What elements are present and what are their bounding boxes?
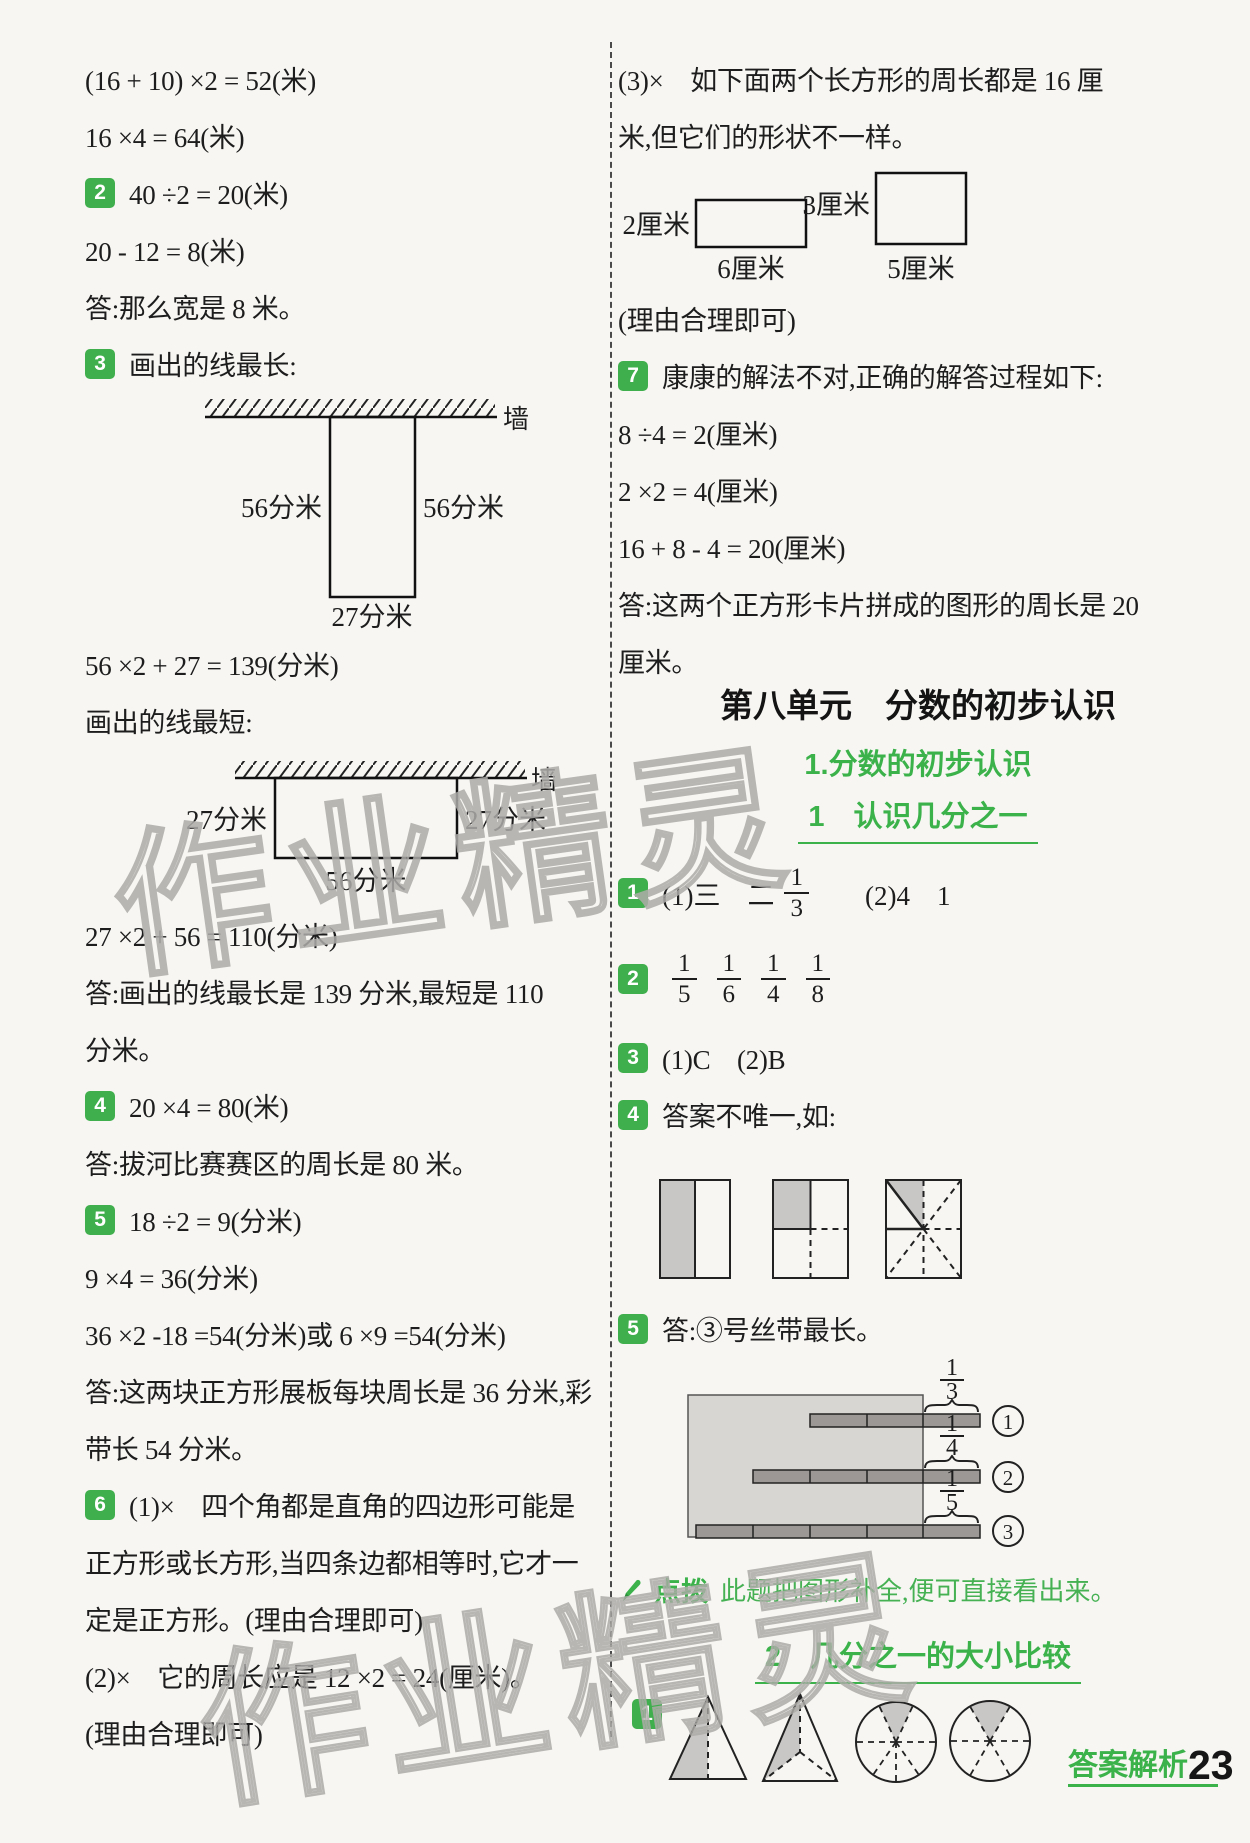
wall-label: 墙 <box>503 405 529 434</box>
fraction: 13 <box>784 864 809 922</box>
pencil-icon <box>618 1577 642 1603</box>
question-number-badge: 3 <box>85 349 115 379</box>
footer-label: 答案解析 <box>1068 1749 1188 1782</box>
lesson1-title: 1 认识几分之一 <box>618 790 1218 847</box>
dimension-label: 3厘米 <box>803 190 871 220</box>
answer-line: 8 ÷4 = 2(厘米) <box>618 404 1218 461</box>
answer-text: 定是正方形。(理由合理即可) <box>85 1599 423 1638</box>
fraction: 15 <box>672 950 697 1008</box>
answer-line: 画出的线最短: <box>85 692 537 749</box>
answer-line: 5答:③号丝带最长。 <box>618 1300 1218 1357</box>
answer-text: 答:这两个正方形卡片拼成的图形的周长是 20 <box>618 584 1139 623</box>
answer-line: 答:拔河比赛赛区的周长是 80 米。 <box>85 1134 537 1191</box>
answer-line: 240 ÷2 = 20(米) <box>85 164 537 221</box>
answer-line: 420 ×4 = 80(米) <box>85 1077 537 1134</box>
answer-line: (理由合理即可) <box>618 290 1218 347</box>
wall-diagram-shortest: 27分米 27分米 56分米 墙 <box>85 749 537 906</box>
right-column: (3)× 如下面两个长方形的周长都是 16 厘 米,但它们的形状不一样。 2厘米… <box>618 50 1218 1792</box>
shaded-squares-svg <box>618 1172 1218 1284</box>
answer-text: (理由合理即可) <box>85 1713 263 1752</box>
answer-text: 答:这两块正方形展板每块周长是 36 分米,彩 <box>85 1371 592 1410</box>
answer-line: 2 ×2 = 4(厘米) <box>618 461 1218 518</box>
fraction: 14 <box>761 950 786 1008</box>
ribbon-svg: 1 3 1 1 4 2 <box>618 1357 1218 1549</box>
wall-hatching <box>235 761 525 777</box>
shaded-squares-diagram <box>618 1172 1218 1284</box>
tip-text: 此题把图形补全,便可直接看出来。 <box>720 1571 1117 1608</box>
dimension-label: 2厘米 <box>623 210 691 240</box>
answer-text: 答:③号丝带最长。 <box>662 1309 883 1348</box>
answer-text: 画出的线最短: <box>85 701 252 740</box>
tip-row: 点拨 此题把图形补全,便可直接看出来。 <box>618 1561 1218 1618</box>
answer-text: 正方形或长方形,当四条边都相等时,它才一 <box>85 1542 579 1581</box>
fraction-numerator: 1 <box>672 950 697 980</box>
question-number-badge: 4 <box>618 1100 648 1130</box>
fraction-numerator: 1 <box>946 1357 958 1381</box>
fraction-denominator: 6 <box>723 980 736 1009</box>
answer-text: 带长 54 分米。 <box>85 1428 258 1467</box>
circled-number-text: 1 <box>1003 1410 1014 1434</box>
ribbon-diagram: 1 3 1 1 4 2 <box>618 1357 1218 1549</box>
fraction-numerator: 1 <box>946 1411 958 1437</box>
answer-text: 分米。 <box>85 1029 165 1068</box>
answer-text: (1)× 四个角都是直角的四边形可能是 <box>129 1485 575 1524</box>
question-number-badge: 7 <box>618 361 648 391</box>
wall-hatching <box>205 399 495 416</box>
answer-line: 3画出的线最长: <box>85 335 537 392</box>
answer-text: 答:画出的线最长是 139 分米,最短是 110 <box>85 972 543 1011</box>
two-rectangles-diagram: 2厘米 6厘米 3厘米 5厘米 <box>618 164 1218 290</box>
answer-line: 正方形或长方形,当四条边都相等时,它才一 <box>85 1533 537 1590</box>
answer-text: 米,但它们的形状不一样。 <box>618 116 918 155</box>
fraction: 16 <box>717 950 742 1008</box>
fraction-denominator: 5 <box>946 1490 958 1516</box>
shaded-half <box>660 1180 695 1278</box>
wall-label: 墙 <box>531 766 555 795</box>
answer-text: 康康的解法不对,正确的解答过程如下: <box>662 356 1103 395</box>
answer-text: 8 ÷4 = 2(厘米) <box>618 413 777 452</box>
page-footer: 答案解析23 <box>1068 1740 1234 1789</box>
fraction-numerator: 1 <box>761 950 786 980</box>
answer-text: 16 ×4 = 64(米) <box>85 116 244 155</box>
fraction-numerator: 1 <box>946 1466 958 1492</box>
answer-text: 36 ×2 -18 =54(分米)或 6 ×9 =54(分米) <box>85 1314 506 1353</box>
answer-line: 6(1)× 四个角都是直角的四边形可能是 <box>85 1476 537 1533</box>
answer-line: 4答案不唯一,如: <box>618 1086 1218 1143</box>
answer-text: 27 ×2 + 56 = 110(分米) <box>85 915 337 954</box>
answer-line: (16 + 10) ×2 = 52(米) <box>85 50 537 107</box>
fraction: 18 <box>806 950 831 1008</box>
answer-text: 9 ×4 = 36(分米) <box>85 1257 258 1296</box>
answer-line: 518 ÷2 = 9(分米) <box>85 1191 537 1248</box>
question-number-badge: 3 <box>618 1043 648 1073</box>
shaded-sector <box>970 1701 1010 1741</box>
answer-line: (2)× 它的周长应是 12 ×2 = 24(厘米)。 <box>85 1647 537 1704</box>
dimension-label: 27分米 <box>332 602 413 632</box>
answer-line: (3)× 如下面两个长方形的周长都是 16 厘 <box>618 50 1218 107</box>
two-rectangles-svg: 2厘米 6厘米 3厘米 5厘米 <box>618 164 1218 290</box>
answer-text: (16 + 10) ×2 = 52(米) <box>85 59 316 98</box>
answer-text: (理由合理即可) <box>618 299 796 338</box>
question-number-badge: 5 <box>85 1205 115 1235</box>
answer-text: 厘米。 <box>618 641 698 680</box>
shaded-quarter <box>773 1180 811 1229</box>
dimension-label: 56分米 <box>326 866 407 896</box>
answer-text: (1)三 二 <box>662 874 774 913</box>
left-column: (16 + 10) ×2 = 52(米) 16 ×4 = 64(米) 240 ÷… <box>85 50 537 1761</box>
answer-line: 分米。 <box>85 1020 537 1077</box>
question-number-badge: 2 <box>85 178 115 208</box>
answer-line: 7康康的解法不对,正确的解答过程如下: <box>618 347 1218 404</box>
dimension-label: 27分米 <box>186 805 267 835</box>
answer-line: 3(1)C (2)B <box>618 1029 1218 1086</box>
shaded-sector <box>879 1702 913 1742</box>
dimension-label: 27分米 <box>465 805 546 835</box>
answer-text: 答案不唯一,如: <box>662 1095 836 1134</box>
answer-text: 20 ×4 = 80(米) <box>129 1086 288 1125</box>
wall-diagram-longest-svg: 56分米 56分米 27分米 墙 <box>85 392 545 635</box>
lesson1-title-text: 1 认识几分之一 <box>798 793 1037 844</box>
fraction-denominator: 3 <box>946 1379 958 1405</box>
answer-line: 答:画出的线最长是 139 分米,最短是 110 <box>85 963 537 1020</box>
wall-diagram-longest: 56分米 56分米 27分米 墙 <box>85 392 537 635</box>
answer-line: 16 ×4 = 64(米) <box>85 107 537 164</box>
question-number-badge: 1 <box>618 878 648 908</box>
answer-text: 答:拔河比赛赛区的周长是 80 米。 <box>85 1143 479 1182</box>
answer-line: 20 - 12 = 8(米) <box>85 221 537 278</box>
answer-text: 40 ÷2 = 20(米) <box>129 173 288 212</box>
dimension-label: 56分米 <box>423 493 504 523</box>
answer-line: 56 ×2 + 27 = 139(分米) <box>85 635 537 692</box>
answer-line: 16 + 8 - 4 = 20(厘米) <box>618 518 1218 575</box>
answer-text: 20 - 12 = 8(米) <box>85 230 245 269</box>
column-divider <box>610 42 612 1737</box>
answer-text: 56 ×2 + 27 = 139(分米) <box>85 644 338 683</box>
answer-line: 米,但它们的形状不一样。 <box>618 107 1218 164</box>
answer-line: 36 ×2 -18 =54(分米)或 6 ×9 =54(分米) <box>85 1305 537 1362</box>
hung-rectangle <box>275 778 457 858</box>
section-title: 1.分数的初步认识 <box>618 733 1218 790</box>
answer-text: 16 + 8 - 4 = 20(厘米) <box>618 527 845 566</box>
question-number-badge: 6 <box>85 1490 115 1520</box>
answer-line: 定是正方形。(理由合理即可) <box>85 1590 537 1647</box>
answer-text: (2)× 它的周长应是 12 ×2 = 24(厘米)。 <box>85 1656 537 1695</box>
dimension-label: 5厘米 <box>887 254 955 284</box>
lesson2-title-text: 2 几分之一的大小比较 <box>755 1633 1081 1684</box>
fraction-denominator: 5 <box>678 980 691 1009</box>
answer-text: 18 ÷2 = 9(分米) <box>129 1200 301 1239</box>
tip-label: 点拨 <box>654 1570 708 1609</box>
ribbon-3 <box>696 1525 980 1538</box>
answer-line: 答:这两个正方形卡片拼成的图形的周长是 20 <box>618 575 1218 632</box>
page-number: 23 <box>1188 1742 1234 1788</box>
lesson2-title: 2 几分之一的大小比较 <box>618 1630 1218 1687</box>
answer-text: (3)× 如下面两个长方形的周长都是 16 厘 <box>618 59 1103 98</box>
answer-text: (2)4 1 <box>865 874 950 913</box>
question-number-badge: 4 <box>85 1091 115 1121</box>
answer-line: 答:这两块正方形展板每块周长是 36 分米,彩 <box>85 1362 537 1419</box>
rectangle-6x2 <box>696 200 806 247</box>
answer-text: 2 ×2 = 4(厘米) <box>618 470 778 509</box>
workbook-answer-page: (16 + 10) ×2 = 52(米) 16 ×4 = 64(米) 240 ÷… <box>0 0 1250 1843</box>
wall-diagram-shortest-svg: 27分米 27分米 56分米 墙 <box>85 749 555 906</box>
fraction-denominator: 8 <box>812 980 825 1009</box>
circled-number-text: 2 <box>1003 1466 1014 1490</box>
answer-line: 9 ×4 = 36(分米) <box>85 1248 537 1305</box>
dimension-label: 56分米 <box>241 493 322 523</box>
answer-line: 答:那么宽是 8 米。 <box>85 278 537 335</box>
answer-text: (1)C (2)B <box>662 1038 785 1077</box>
fraction-numerator: 1 <box>717 950 742 980</box>
answer-line: 1 (1)三 二 13 (2)4 1 <box>618 853 1218 933</box>
fraction-numerator: 1 <box>784 864 809 894</box>
answer-line: 带长 54 分米。 <box>85 1419 537 1476</box>
answer-line: 2 15 16 14 18 <box>618 939 1218 1019</box>
answer-text: 画出的线最长: <box>129 344 296 383</box>
circled-number-text: 3 <box>1003 1520 1014 1544</box>
answer-line: 27 ×2 + 56 = 110(分米) <box>85 906 537 963</box>
question-number-badge: 2 <box>618 964 648 994</box>
answer-text: 答:那么宽是 8 米。 <box>85 287 305 326</box>
fraction-denominator: 3 <box>790 894 803 923</box>
rectangle-5x3 <box>876 173 966 244</box>
answer-line: (理由合理即可) <box>85 1704 537 1761</box>
fraction-denominator: 4 <box>767 980 780 1009</box>
unit-title: 第八单元 分数的初步认识 <box>618 681 1218 725</box>
question-number-badge: 5 <box>618 1314 648 1344</box>
dimension-label: 6厘米 <box>717 254 785 284</box>
fraction-denominator: 4 <box>946 1435 958 1461</box>
footer-underline <box>1068 1784 1218 1787</box>
hung-rectangle <box>330 417 415 597</box>
fraction-numerator: 1 <box>806 950 831 980</box>
